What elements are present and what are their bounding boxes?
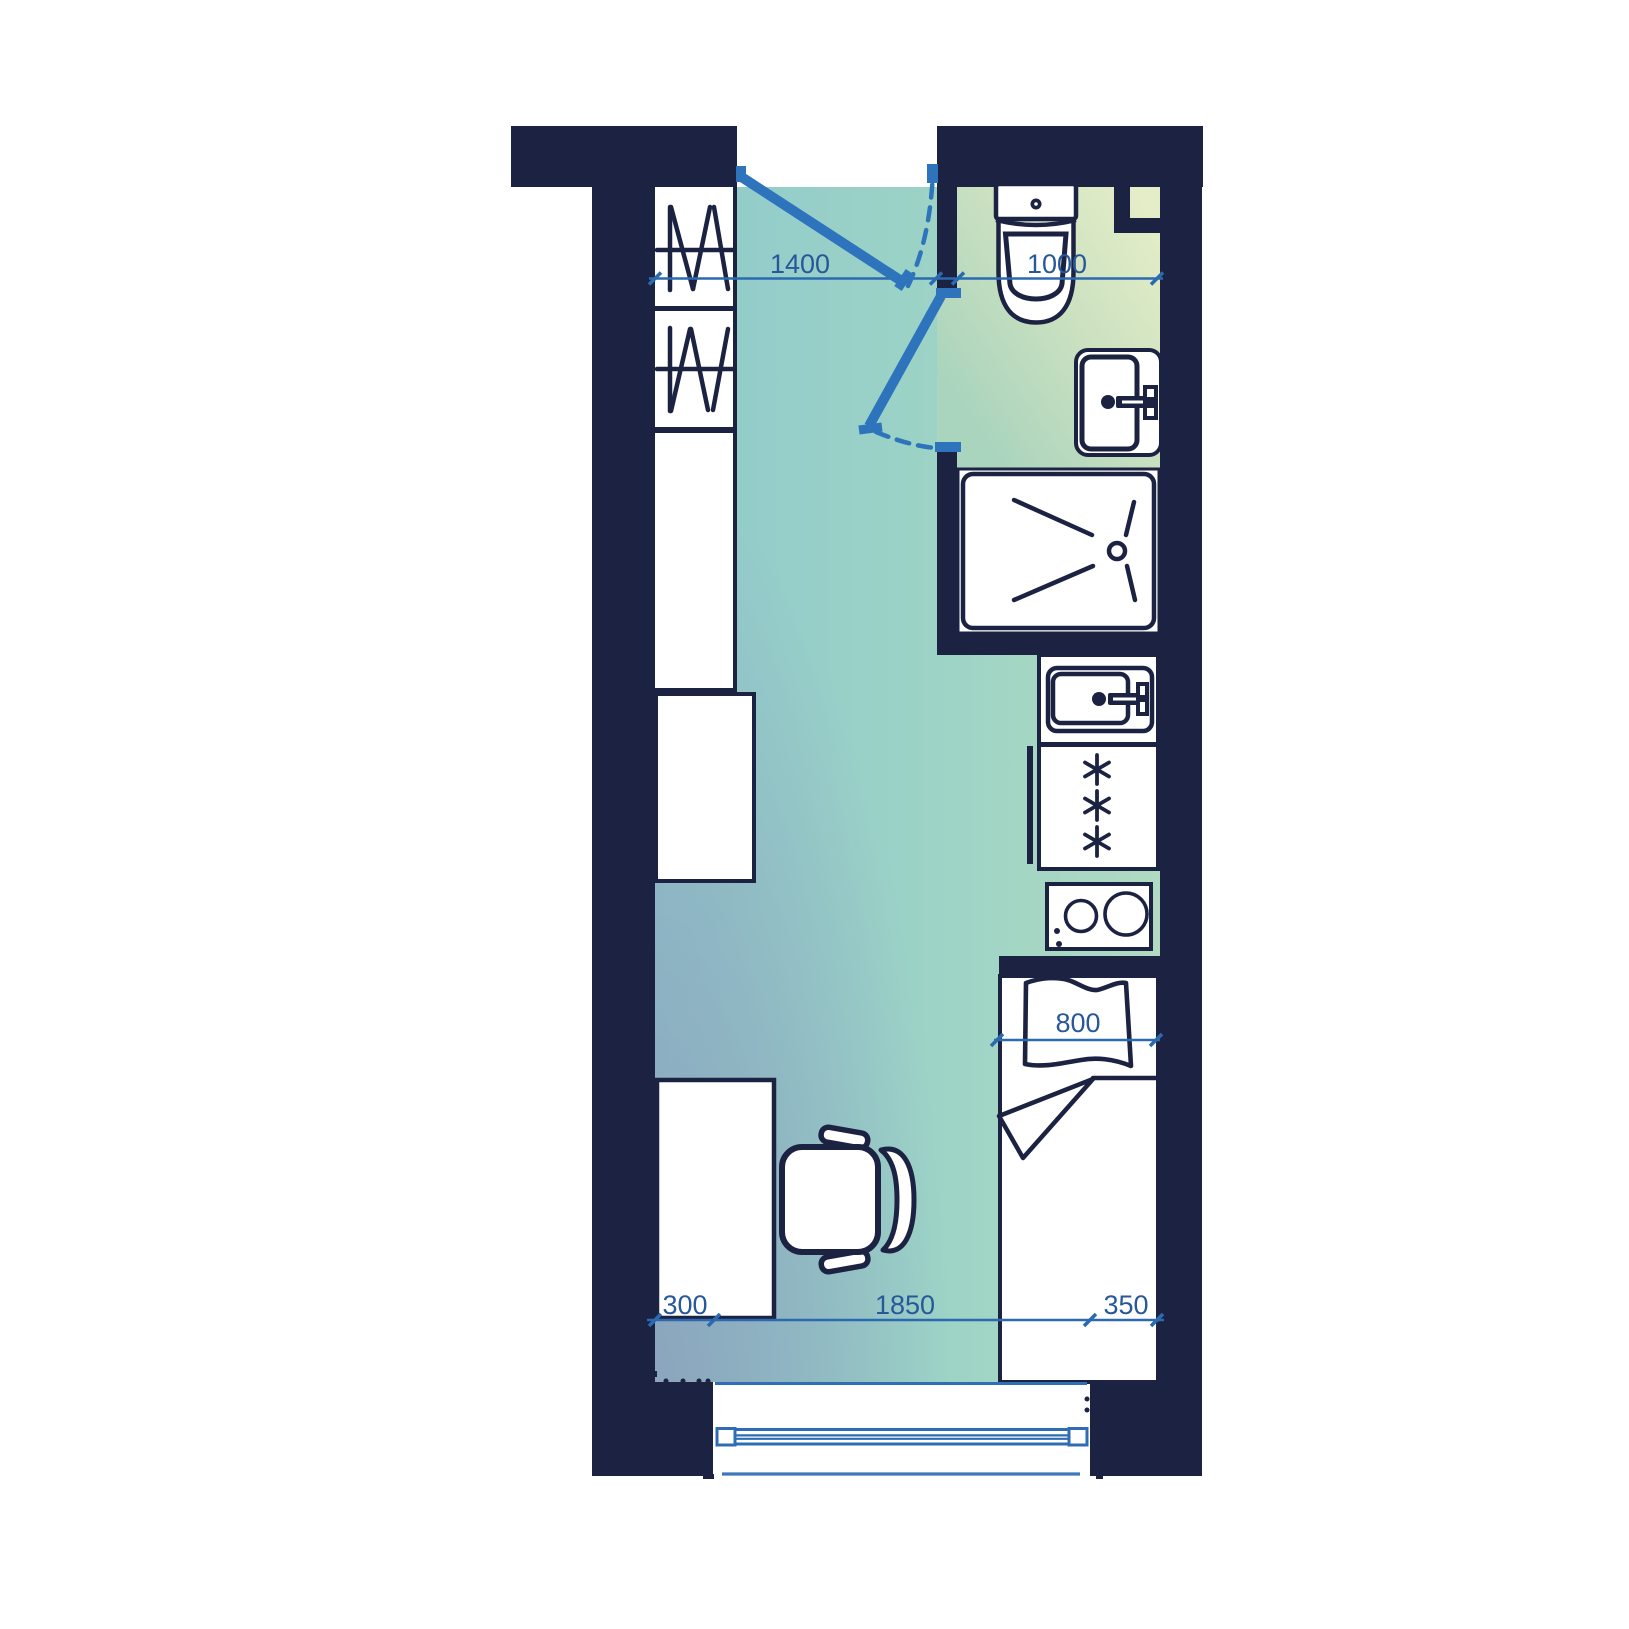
svg-text:1850: 1850 [875,1290,935,1320]
svg-text:300: 300 [662,1290,707,1320]
svg-text:800: 800 [1055,1008,1100,1038]
svg-text:1000: 1000 [1027,249,1087,279]
svg-text:350: 350 [1103,1290,1148,1320]
svg-text:1400: 1400 [770,249,830,279]
